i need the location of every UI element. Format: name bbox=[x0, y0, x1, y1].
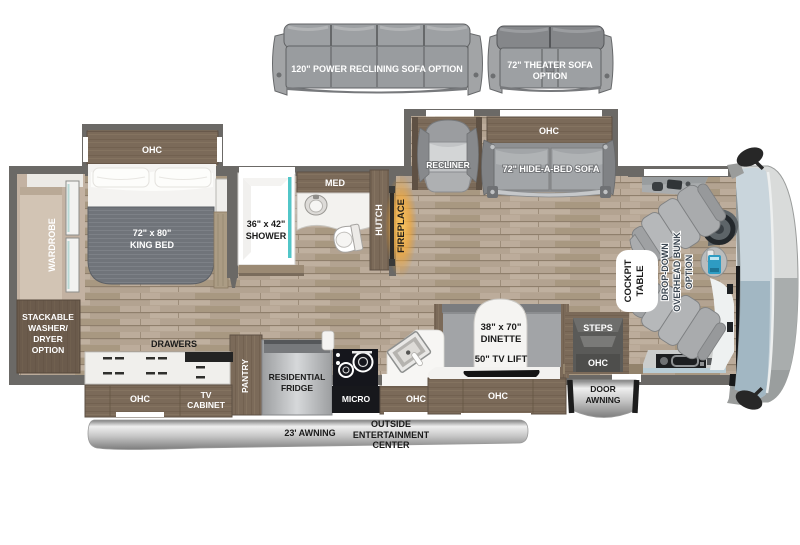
svg-text:OVERHEAD BUNK: OVERHEAD BUNK bbox=[672, 232, 682, 312]
svg-text:PANTRY: PANTRY bbox=[240, 359, 250, 393]
svg-text:38" x 70": 38" x 70" bbox=[481, 322, 522, 333]
svg-text:DRAWERS: DRAWERS bbox=[151, 339, 197, 349]
svg-text:OHC: OHC bbox=[142, 145, 163, 155]
svg-text:OHC: OHC bbox=[406, 394, 427, 404]
svg-text:OPTION: OPTION bbox=[533, 71, 568, 81]
svg-text:50" TV LIFT: 50" TV LIFT bbox=[475, 354, 528, 365]
svg-text:ENTERTAINMENT: ENTERTAINMENT bbox=[353, 430, 430, 440]
svg-text:DROP-DOWN: DROP-DOWN bbox=[660, 243, 670, 301]
svg-text:DOOR: DOOR bbox=[590, 384, 616, 394]
svg-text:OUTSIDE: OUTSIDE bbox=[371, 419, 411, 429]
svg-text:TV: TV bbox=[201, 390, 212, 400]
svg-text:CENTER: CENTER bbox=[372, 440, 410, 450]
svg-text:SHOWER: SHOWER bbox=[246, 231, 287, 241]
svg-text:72" x 80": 72" x 80" bbox=[133, 228, 172, 238]
svg-text:RECLINER: RECLINER bbox=[426, 160, 469, 170]
svg-text:FIREPLACE: FIREPLACE bbox=[396, 199, 407, 253]
svg-text:CABINET: CABINET bbox=[187, 400, 226, 410]
svg-text:MED: MED bbox=[325, 178, 346, 188]
svg-text:HUTCH: HUTCH bbox=[374, 204, 384, 236]
svg-text:36" x 42": 36" x 42" bbox=[247, 219, 286, 229]
svg-text:23' AWNING: 23' AWNING bbox=[284, 428, 335, 438]
svg-text:DRYER: DRYER bbox=[33, 334, 62, 344]
svg-text:OPTION: OPTION bbox=[684, 255, 694, 290]
svg-text:72" THEATER SOFA: 72" THEATER SOFA bbox=[507, 60, 593, 70]
svg-text:FRIDGE: FRIDGE bbox=[281, 383, 313, 393]
svg-text:AWNING: AWNING bbox=[586, 395, 621, 405]
svg-text:MICRO: MICRO bbox=[342, 394, 371, 404]
svg-text:RESIDENTIAL: RESIDENTIAL bbox=[269, 372, 326, 382]
svg-text:STEPS: STEPS bbox=[583, 323, 613, 333]
svg-text:OPTION: OPTION bbox=[32, 345, 65, 355]
svg-text:STACKABLE: STACKABLE bbox=[22, 312, 74, 322]
svg-text:OHC: OHC bbox=[130, 394, 151, 404]
svg-text:OHC: OHC bbox=[488, 391, 509, 401]
svg-text:KING BED: KING BED bbox=[130, 240, 175, 250]
svg-text:72" HIDE-A-BED SOFA: 72" HIDE-A-BED SOFA bbox=[503, 164, 600, 174]
svg-text:TABLE: TABLE bbox=[635, 266, 646, 297]
svg-text:120" POWER RECLINING SOFA OPTI: 120" POWER RECLINING SOFA OPTION bbox=[291, 64, 462, 74]
svg-text:WARDROBE: WARDROBE bbox=[47, 218, 57, 272]
svg-text:OHC: OHC bbox=[539, 126, 560, 136]
svg-text:COCKPIT: COCKPIT bbox=[623, 259, 634, 302]
svg-text:WASHER/: WASHER/ bbox=[28, 323, 68, 333]
svg-text:DINETTE: DINETTE bbox=[481, 334, 522, 345]
svg-text:OHC: OHC bbox=[588, 358, 609, 368]
